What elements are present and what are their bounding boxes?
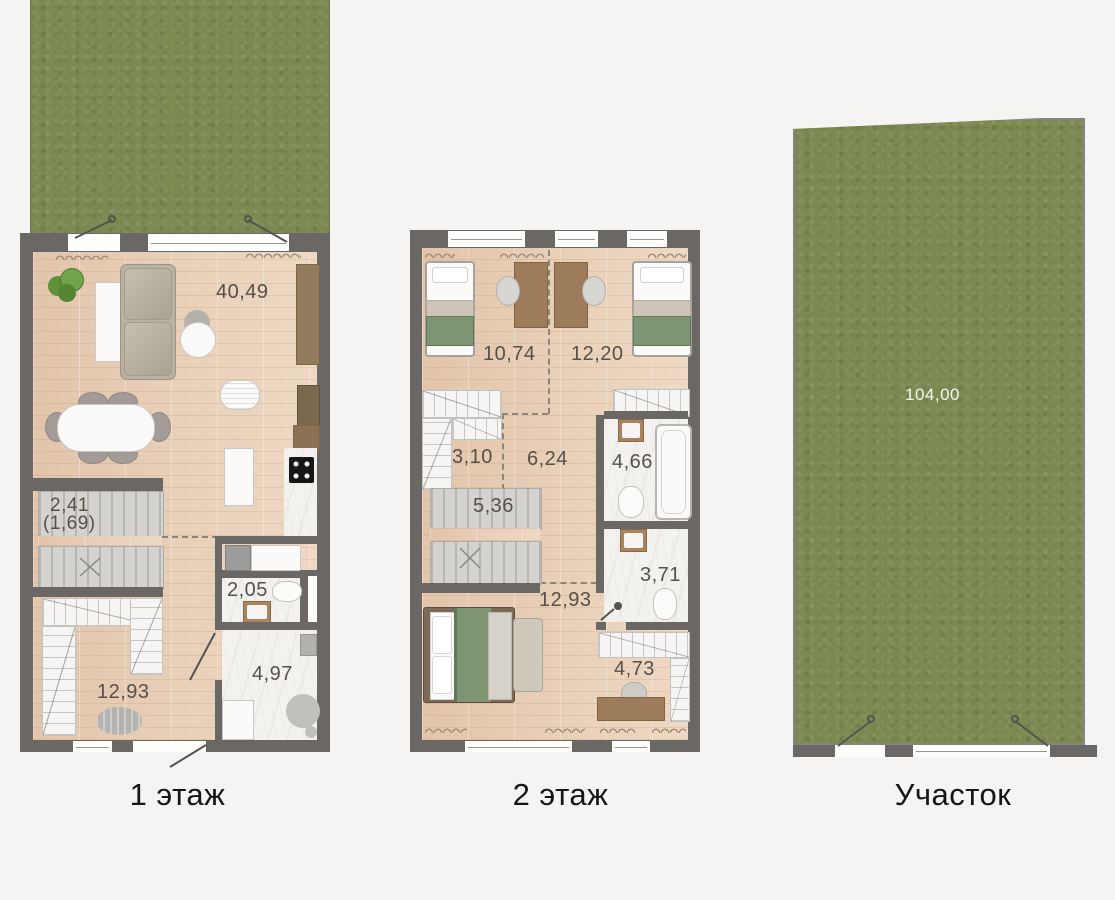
plot-fence-opening <box>913 745 1050 757</box>
washing-machine <box>225 545 251 571</box>
radiator-squiggle <box>652 726 686 733</box>
wall-wc-left-a <box>215 540 222 625</box>
room-label-stairs-alt: (1,69) <box>43 514 96 534</box>
room-label-wardrobe: 3,10 <box>452 447 493 468</box>
sink-vanity <box>243 601 271 623</box>
wall-bath-left <box>596 415 604 593</box>
dining-table <box>57 404 155 452</box>
stairs-lower-flight <box>430 541 542 585</box>
sink-vanity <box>618 419 644 442</box>
console-table <box>95 282 121 362</box>
radiator-squiggle <box>600 726 636 733</box>
bed-double <box>423 607 515 703</box>
zone-dashed-line <box>540 582 597 584</box>
zone-dashed-line <box>502 413 504 490</box>
plot-wall <box>1050 745 1097 757</box>
desk <box>597 697 665 721</box>
floor1-wall-left <box>20 233 33 752</box>
wardrobe <box>42 626 76 736</box>
wardrobe <box>670 658 690 722</box>
plot-gate <box>835 745 885 757</box>
floor2-wall-left <box>410 230 422 752</box>
room-label-cabinet: 4,73 <box>614 659 655 680</box>
room-label-living: 40,49 <box>216 282 269 303</box>
cooktop <box>289 457 314 483</box>
plot-wall <box>885 745 913 757</box>
floor2-window <box>612 741 650 752</box>
wall-wc-left-b <box>215 680 222 740</box>
floor2-window <box>448 231 525 247</box>
room-label-hall: 12,93 <box>97 682 150 703</box>
floor1-entrance-terrace-door <box>68 234 120 251</box>
floor2-caption: 2 этаж <box>483 777 638 813</box>
wall-bath371-bottom-b <box>626 622 688 630</box>
wardrobe <box>422 390 502 418</box>
room-label-stairs2: 5,36 <box>473 496 514 517</box>
wall-bath371-bottom-a <box>596 622 606 630</box>
sink-vanity <box>620 529 647 552</box>
stairs-wall-bottom <box>422 583 540 593</box>
zone-dashed-line <box>502 413 548 415</box>
room-label-bath-top: 4,66 <box>612 452 653 473</box>
laundry-counter <box>251 545 301 571</box>
stairs-wall-top <box>33 478 163 491</box>
wardrobe <box>452 418 502 440</box>
garden-grass-floor1 <box>30 0 330 233</box>
stairs-lower-flight <box>38 546 164 589</box>
bed-single <box>632 261 692 357</box>
wall-wc-right <box>300 570 308 625</box>
water-heater <box>300 634 317 656</box>
floorplan-canvas: 40,49 2,41 (1,69) 2,05 4,97 12,93 <box>0 0 1115 900</box>
wall-bath-top <box>215 622 317 630</box>
shower-head <box>286 694 320 728</box>
plot-caption: Участок <box>865 777 1041 813</box>
plant-icon <box>46 268 84 304</box>
plot-area-label: 104,00 <box>905 385 960 405</box>
wardrobe <box>422 418 452 490</box>
rug <box>96 707 142 735</box>
radiator-squiggle <box>648 251 686 258</box>
floor2-window <box>465 741 572 752</box>
room-label-master: 12,93 <box>539 590 592 611</box>
bed-single <box>425 261 475 357</box>
zone-dashed-line <box>548 250 550 414</box>
plot-wall <box>793 745 835 757</box>
floor2-window <box>627 231 667 247</box>
wall-bath466-top <box>604 411 688 419</box>
kitchen-cabinet-dark <box>297 385 320 429</box>
floor2-window <box>555 231 598 247</box>
toilet <box>618 486 644 518</box>
room-label-hall2: 6,24 <box>527 449 568 470</box>
wardrobe <box>598 632 690 658</box>
stairs-landing <box>430 528 540 541</box>
radiator-squiggle <box>56 253 108 260</box>
toilet <box>653 588 677 620</box>
room-label-bath: 4,97 <box>252 664 293 685</box>
kitchen-tall-cabinet <box>296 264 320 365</box>
washer-dryer <box>222 700 254 740</box>
kitchen-island <box>224 448 254 506</box>
desk-chair <box>496 276 520 306</box>
desk-chair <box>582 276 606 306</box>
floor1-caption: 1 этаж <box>100 777 255 813</box>
room-label-wc: 2,05 <box>227 580 268 601</box>
bed-bench <box>513 618 543 692</box>
floor1-window-bottom <box>73 741 112 752</box>
radiator-squiggle <box>425 251 455 258</box>
plot-grass <box>793 118 1085 745</box>
coffee-table <box>180 322 216 358</box>
bathtub <box>655 424 692 520</box>
room-label-bedroom-right: 12,20 <box>571 344 624 365</box>
sofa <box>120 264 176 380</box>
stairs-landing <box>38 536 162 546</box>
floor1-entrance-door <box>133 741 206 752</box>
toilet <box>272 581 302 602</box>
radiator-squiggle <box>545 726 585 733</box>
radiator-squiggle <box>500 251 545 258</box>
wc-door-opening <box>308 576 317 622</box>
armchair <box>220 380 260 410</box>
room-label-bedroom-left: 10,74 <box>483 344 536 365</box>
room-label-bath-bottom: 3,71 <box>640 565 681 586</box>
radiator-squiggle <box>246 251 301 258</box>
shower-drain <box>305 726 317 738</box>
wall-kitchen-laundry <box>215 536 317 544</box>
stairs-wall-bottom <box>33 587 163 597</box>
zone-dashed-line <box>162 536 218 538</box>
floor1-window-top <box>148 234 289 251</box>
wardrobe <box>130 598 163 675</box>
wall-bath371-mid <box>597 521 688 529</box>
radiator-squiggle <box>425 726 467 733</box>
